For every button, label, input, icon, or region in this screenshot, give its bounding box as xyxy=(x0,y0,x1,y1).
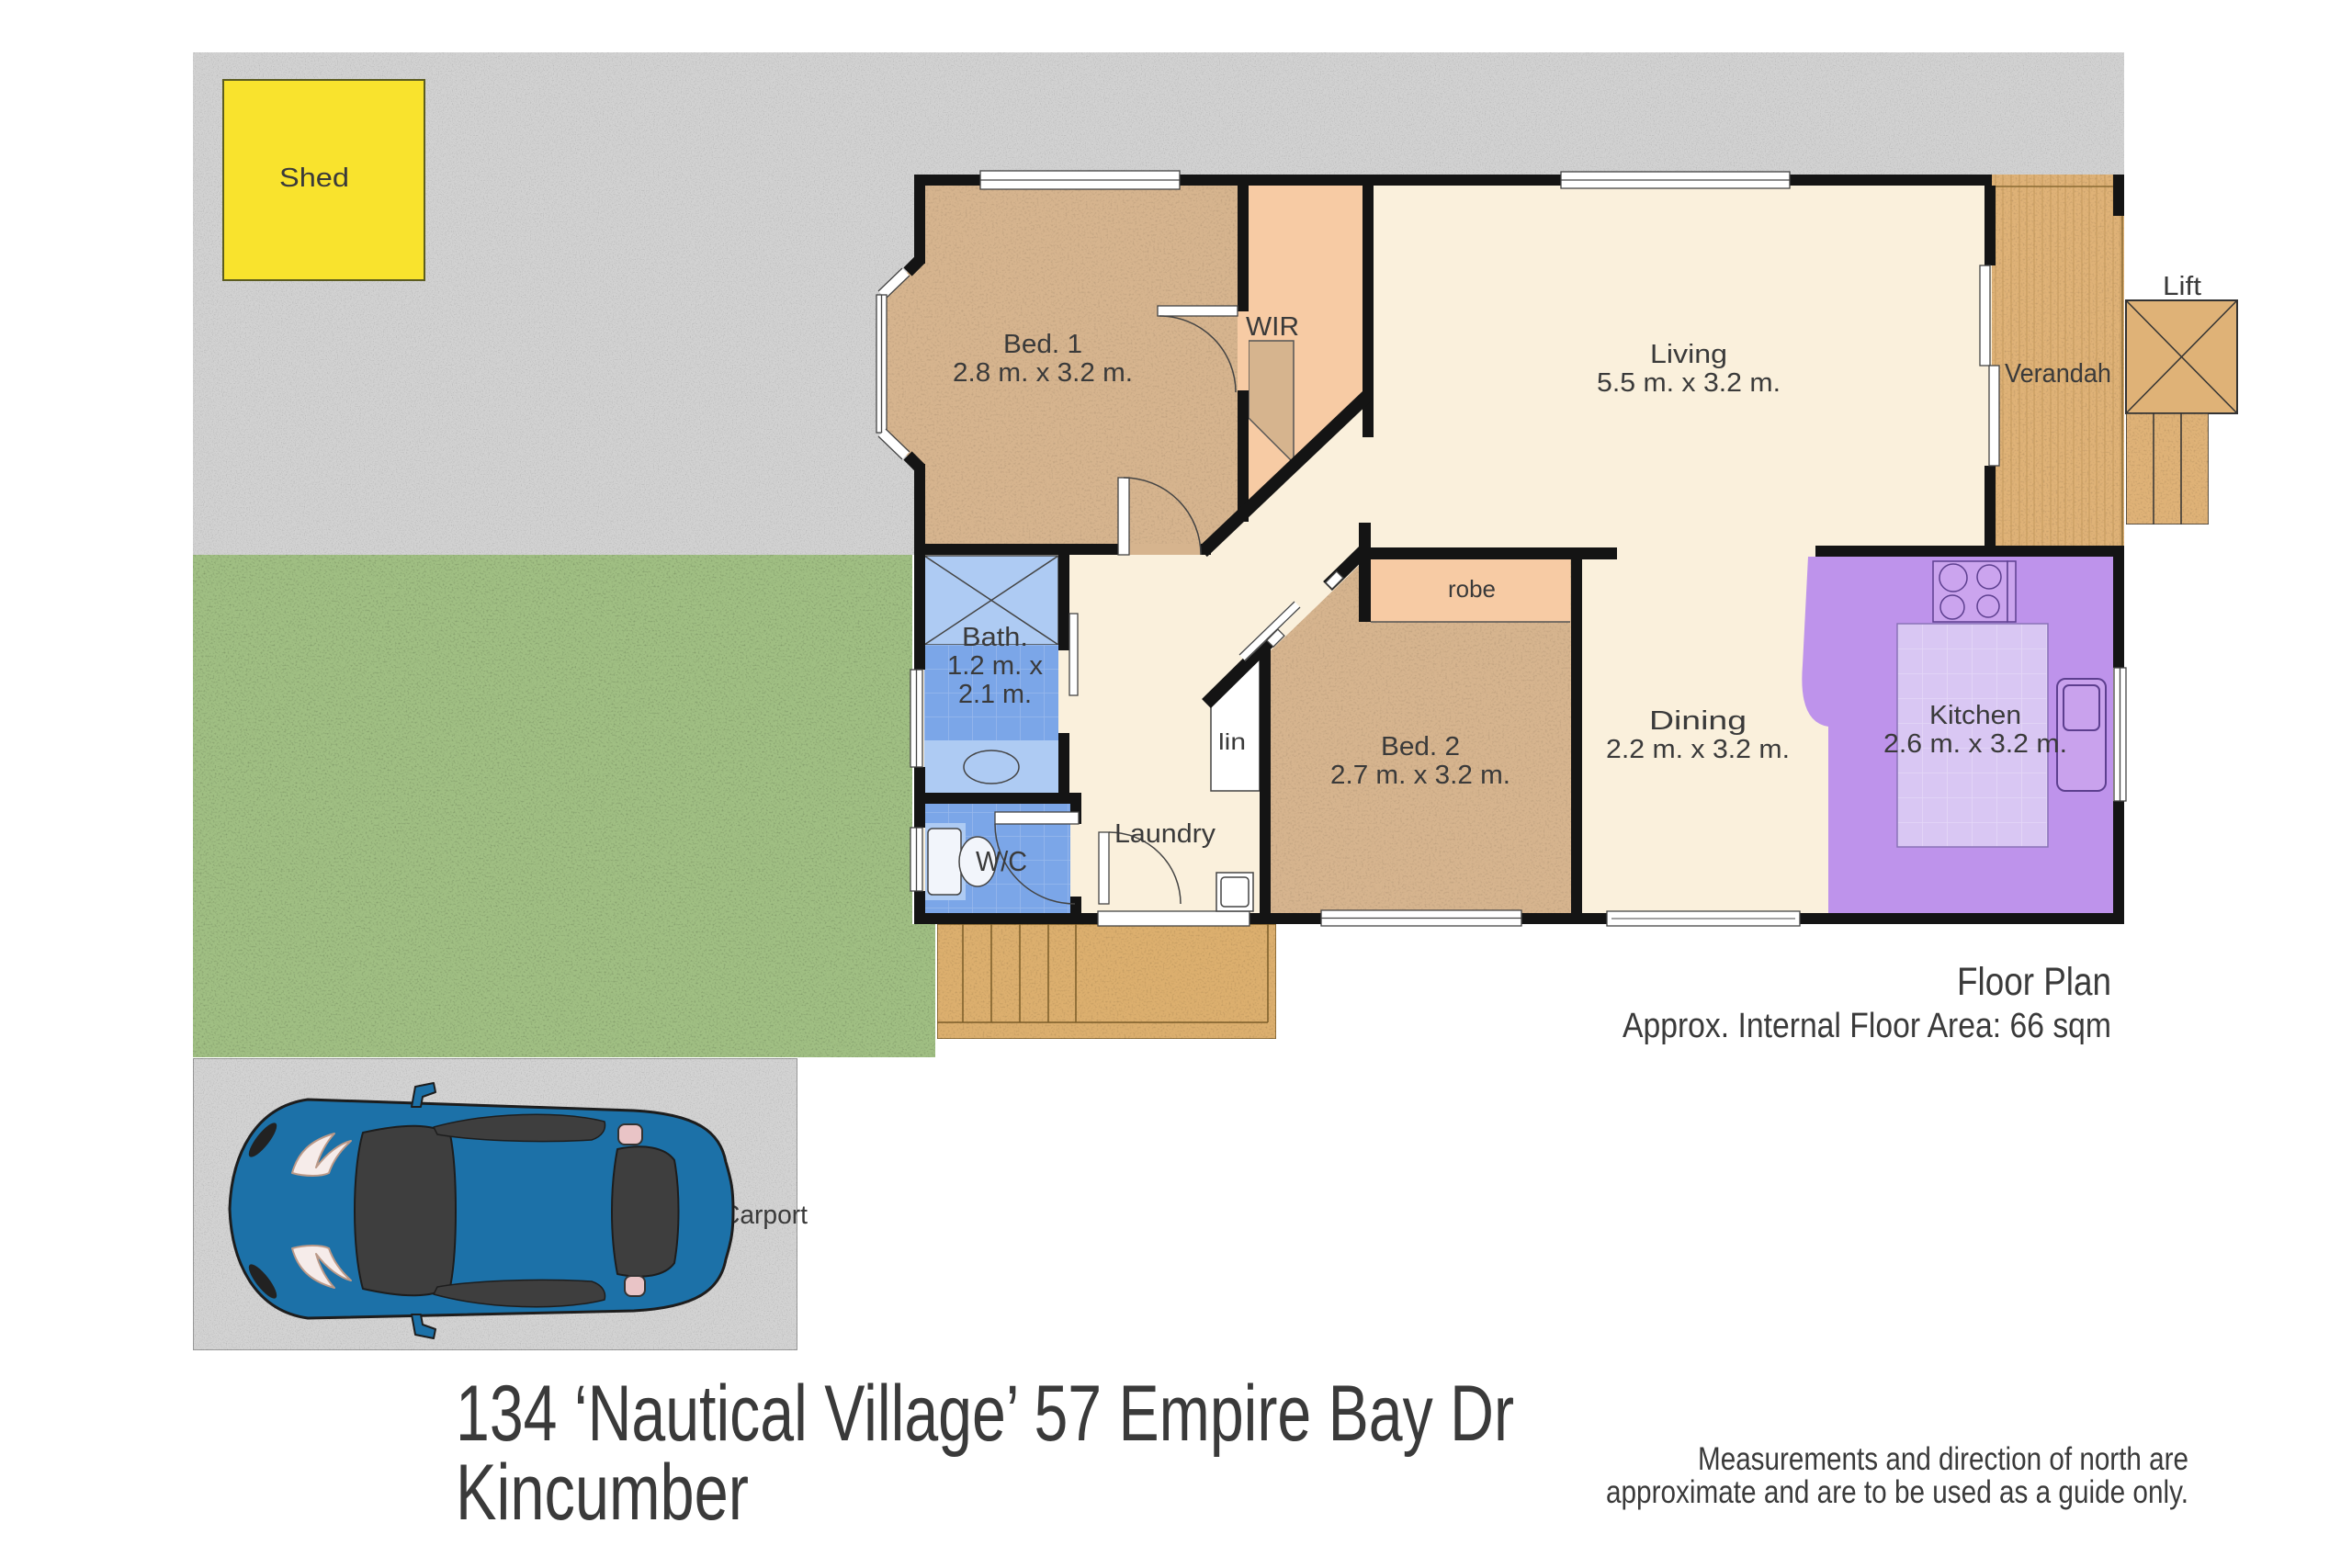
svg-text:Approx. Internal Floor Area: 6: Approx. Internal Floor Area: 66 sqm xyxy=(1623,1007,2111,1045)
svg-text:Verandah: Verandah xyxy=(2005,359,2111,389)
svg-text:WIR: WIR xyxy=(1246,312,1299,342)
svg-text:134 ‘Nautical Village’ 57 Empi: 134 ‘Nautical Village’ 57 Empire Bay Dr xyxy=(456,1370,1514,1458)
svg-text:approximate and are to be used: approximate and are to be used as a guid… xyxy=(1606,1474,2188,1510)
svg-text:Laundry: Laundry xyxy=(1114,819,1216,849)
svg-text:Living: Living xyxy=(1650,340,1727,369)
svg-text:2.1 m.: 2.1 m. xyxy=(958,680,1032,709)
svg-text:2.8 m. x 3.2 m.: 2.8 m. x 3.2 m. xyxy=(953,358,1133,388)
svg-text:lin: lin xyxy=(1218,729,1246,755)
svg-text:Kincumber: Kincumber xyxy=(456,1449,749,1537)
svg-text:Floor Plan: Floor Plan xyxy=(1957,960,2111,1004)
svg-text:2.6 m. x 3.2 m.: 2.6 m. x 3.2 m. xyxy=(1883,729,2067,759)
svg-text:W/C: W/C xyxy=(976,845,1027,877)
svg-text:robe: robe xyxy=(1448,575,1496,603)
svg-text:5.5 m. x 3.2 m.: 5.5 m. x 3.2 m. xyxy=(1597,368,1781,398)
svg-text:Bath.: Bath. xyxy=(962,623,1028,652)
svg-text:Kitchen: Kitchen xyxy=(1929,701,2021,730)
svg-text:Dining: Dining xyxy=(1649,706,1747,736)
svg-text:Lift: Lift xyxy=(2163,272,2201,301)
svg-text:Measurements and direction of: Measurements and direction of north are xyxy=(1698,1441,2188,1477)
svg-text:Bed. 2: Bed. 2 xyxy=(1381,732,1460,761)
svg-text:1.2 m. x: 1.2 m. x xyxy=(947,651,1043,681)
svg-text:Shed: Shed xyxy=(279,164,349,193)
svg-text:2.2 m. x 3.2 m.: 2.2 m. x 3.2 m. xyxy=(1606,735,1790,764)
svg-text:Bed. 1: Bed. 1 xyxy=(1003,330,1082,359)
svg-text:2.7 m. x 3.2 m.: 2.7 m. x 3.2 m. xyxy=(1330,761,1510,790)
